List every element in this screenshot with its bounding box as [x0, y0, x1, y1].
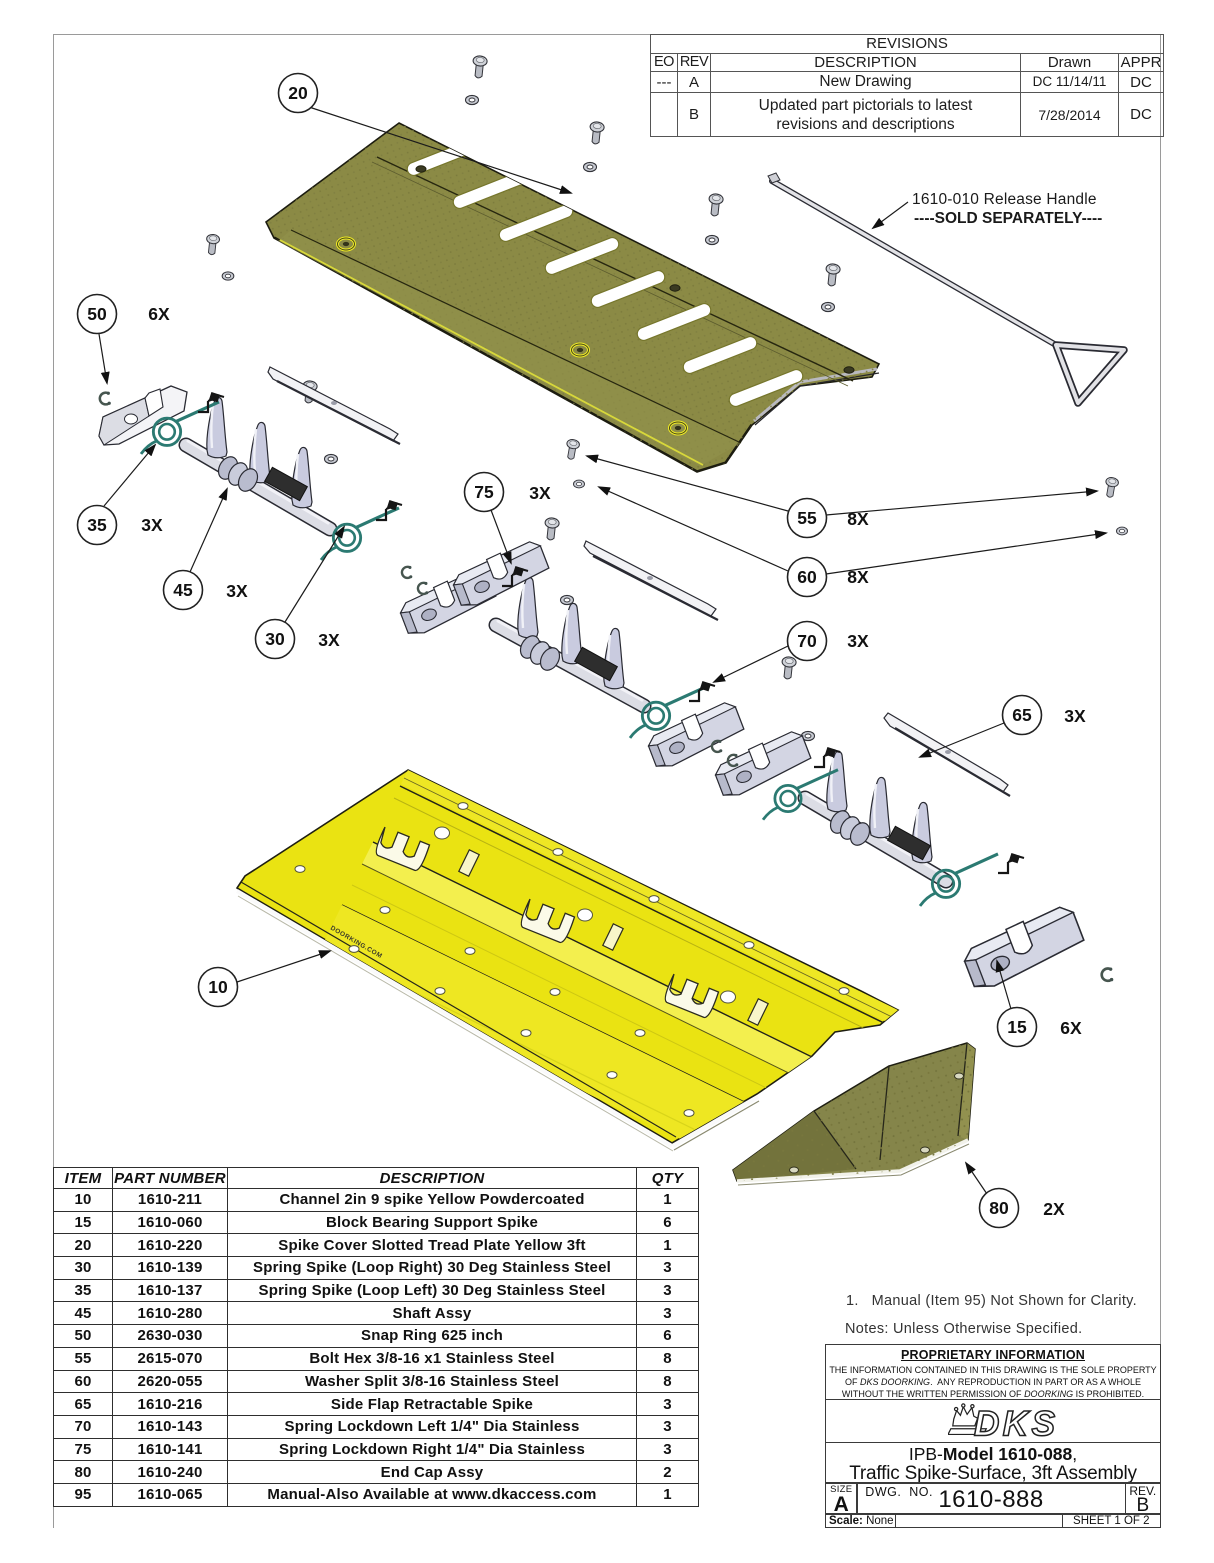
svg-text:6X: 6X: [148, 304, 170, 324]
svg-text:30: 30: [265, 629, 285, 649]
svg-text:2X: 2X: [1043, 1199, 1065, 1219]
svg-text:8X: 8X: [847, 509, 869, 529]
svg-text:75: 75: [474, 482, 494, 502]
svg-text:10: 10: [208, 977, 228, 997]
svg-text:20: 20: [288, 83, 308, 103]
svg-text:50: 50: [87, 304, 107, 324]
svg-text:80: 80: [989, 1198, 1009, 1218]
svg-text:65: 65: [1012, 705, 1032, 725]
svg-text:3X: 3X: [1064, 706, 1086, 726]
svg-text:8X: 8X: [847, 567, 869, 587]
svg-text:15: 15: [1007, 1017, 1027, 1037]
svg-text:60: 60: [797, 567, 817, 587]
svg-text:3X: 3X: [318, 630, 340, 650]
svg-text:DKS: DKS: [974, 1404, 1056, 1442]
svg-text:70: 70: [797, 631, 817, 651]
svg-text:3X: 3X: [529, 483, 551, 503]
svg-text:3X: 3X: [226, 581, 248, 601]
svg-text:6X: 6X: [1060, 1018, 1082, 1038]
svg-text:3X: 3X: [847, 631, 869, 651]
svg-text:55: 55: [797, 508, 817, 528]
svg-text:45: 45: [173, 580, 193, 600]
svg-text:35: 35: [87, 515, 107, 535]
svg-text:3X: 3X: [141, 515, 163, 535]
